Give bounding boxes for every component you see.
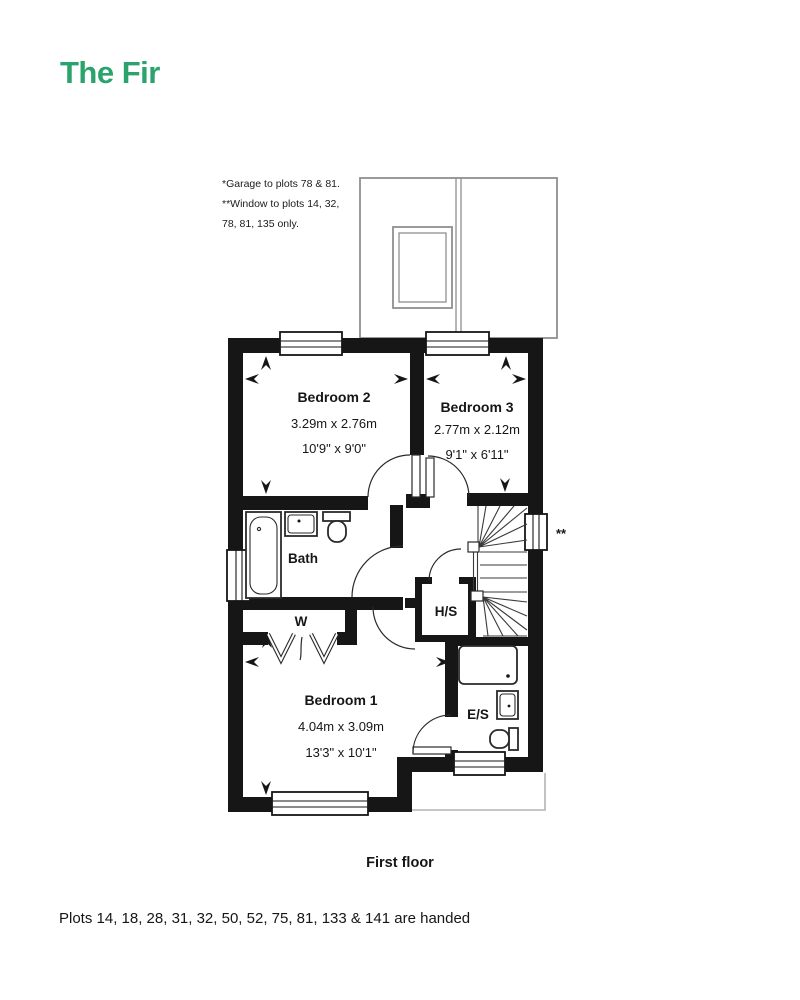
wall: [528, 338, 543, 772]
wall-bath-right: [390, 505, 403, 548]
bedroom3-door-leaf: [426, 458, 434, 497]
shower-icon: [459, 646, 517, 684]
bed2-dim-arrow-left: [245, 374, 259, 384]
bed3-dim-arrow-down: [500, 478, 510, 492]
hs-label: H/S: [435, 604, 458, 619]
wall-bed2-bottom: [243, 496, 368, 510]
bedroom3-imperial: 9'1" x 6'11": [445, 447, 508, 462]
ensuite-label: E/S: [467, 707, 489, 722]
window-bedroom3: [426, 332, 489, 355]
wall-bed2-bed3-divider: [410, 353, 424, 455]
room-labels: Bedroom 2 3.29m x 2.76m 10'9" x 9'0" Bed…: [288, 389, 567, 760]
bedroom2-door-leaf: [412, 455, 420, 497]
bath-label: Bath: [288, 551, 318, 566]
wall: [228, 338, 543, 353]
wall-hs-left: [415, 577, 422, 642]
bed1-dim-arrow-left: [245, 657, 259, 667]
bedroom2-imperial: 10'9" x 9'0": [302, 441, 366, 456]
bedroom1-door-arc: [373, 607, 415, 649]
wardrobe-label: W: [295, 614, 308, 629]
window-stairs-starred: [525, 514, 547, 550]
bedroom1-metric: 4.04m x 3.09m: [298, 719, 384, 734]
floor-plan: Bedroom 2 3.29m x 2.76m 10'9" x 9'0" Bed…: [0, 0, 800, 1000]
bed2-dim-arrow-right: [394, 374, 408, 384]
garage-skylight: [393, 227, 452, 308]
bedroom1-label: Bedroom 1: [304, 692, 377, 708]
window-ensuite: [454, 752, 505, 775]
hs-door-arc: [429, 549, 461, 581]
newel-post: [471, 591, 483, 601]
garage-rect: [360, 178, 557, 338]
wall-wardrobe-right: [345, 608, 357, 635]
wall-es-top: [445, 637, 543, 646]
wall-wardrobe-bottom: [337, 632, 357, 645]
bedroom1-imperial: 13'3" x 10'1": [305, 745, 377, 760]
garage-outline: [360, 178, 557, 338]
es-sink-icon: [497, 691, 518, 719]
window-marker-label: **: [556, 526, 567, 541]
floor-caption: First floor: [0, 855, 800, 871]
window-bedroom2: [280, 332, 342, 355]
bathtub-icon: [246, 512, 281, 598]
bath-sink-icon: [285, 512, 317, 536]
bed3-dim-arrow-right: [512, 374, 526, 384]
bedroom3-metric: 2.77m x 2.12m: [434, 422, 520, 437]
wall-hs-right: [468, 577, 476, 642]
bedroom3-label: Bedroom 3: [440, 399, 513, 415]
es-toilet-icon: [490, 728, 518, 750]
wall-bath-bottom: [243, 597, 403, 610]
wall-bed1-door-stub: [405, 598, 417, 608]
window-bedroom1: [272, 792, 368, 815]
handed-plots-note: Plots 14, 18, 28, 31, 32, 50, 52, 75, 81…: [59, 910, 470, 927]
ensuite-door-leaf: [413, 747, 451, 754]
bedroom2-door-arc: [368, 455, 410, 497]
stairs: [468, 506, 527, 636]
canopy-outline: [412, 773, 545, 810]
bedroom2-metric: 3.29m x 2.76m: [291, 416, 377, 431]
bed3-dim-arrow-up: [501, 356, 511, 370]
wall-es-left: [445, 637, 458, 717]
ensuite-fixtures: [459, 646, 518, 750]
garage-skylight-inner: [399, 233, 446, 302]
bath-door-arc: [352, 546, 403, 597]
bed2-dim-arrow-up: [261, 356, 271, 370]
bed3-dim-arrow-left: [426, 374, 440, 384]
bed2-dim-arrow-down: [261, 480, 271, 494]
bedroom2-label: Bedroom 2: [297, 389, 370, 405]
bath-toilet-icon: [323, 512, 350, 542]
wardrobe-bifold-doors: [268, 634, 337, 660]
bed1-dim-arrow-down: [261, 781, 271, 795]
newel-post: [468, 542, 479, 552]
wall-bed3-bottom: [467, 493, 528, 506]
